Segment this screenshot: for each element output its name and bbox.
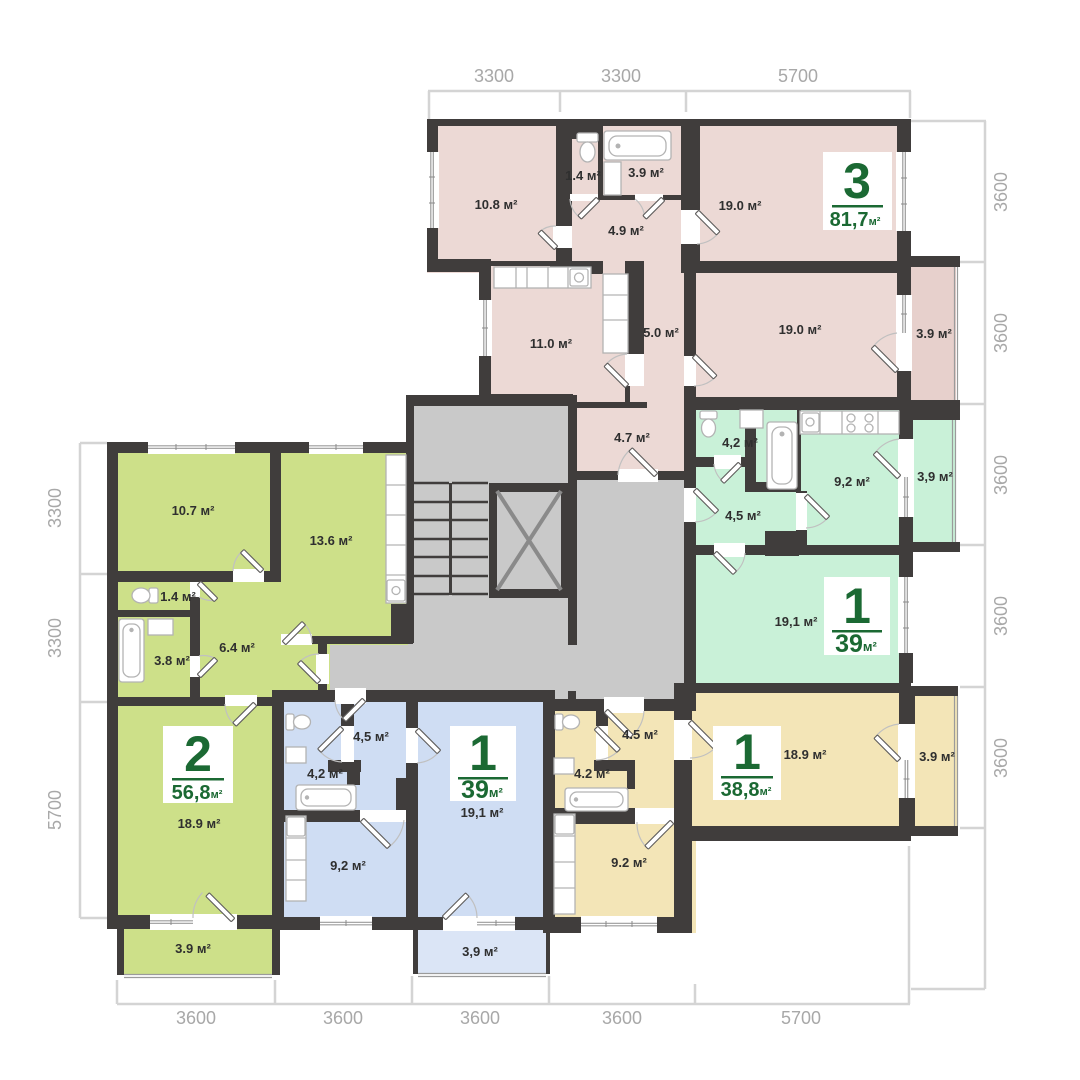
svg-text:3.9 м²: 3.9 м² [916, 326, 952, 341]
svg-text:10.7 м²: 10.7 м² [172, 503, 216, 518]
svg-text:19,1 м²: 19,1 м² [775, 614, 819, 629]
svg-text:13.6 м²: 13.6 м² [310, 533, 354, 548]
svg-text:5700: 5700 [45, 790, 65, 830]
svg-text:3300: 3300 [601, 66, 641, 86]
svg-text:3.9 м²: 3.9 м² [175, 941, 211, 956]
svg-text:19.0 м²: 19.0 м² [719, 198, 763, 213]
svg-text:1: 1 [469, 725, 497, 781]
svg-text:3.8 м²: 3.8 м² [154, 653, 190, 668]
svg-text:19.0 м²: 19.0 м² [779, 322, 823, 337]
svg-text:11.0 м²: 11.0 м² [530, 336, 573, 351]
svg-text:1: 1 [733, 724, 761, 780]
svg-text:3600: 3600 [991, 596, 1011, 636]
svg-text:5700: 5700 [778, 66, 818, 86]
svg-text:3600: 3600 [991, 738, 1011, 778]
svg-text:3,9 м²: 3,9 м² [462, 944, 498, 959]
svg-text:4,2 м²: 4,2 м² [722, 435, 758, 450]
svg-text:1: 1 [843, 578, 871, 634]
svg-text:3300: 3300 [45, 618, 65, 658]
svg-text:3600: 3600 [460, 1008, 500, 1028]
svg-text:9.2 м²: 9.2 м² [611, 855, 647, 870]
svg-text:5.0 м²: 5.0 м² [643, 325, 679, 340]
svg-text:3.9 м²: 3.9 м² [628, 165, 664, 180]
svg-text:3,9 м²: 3,9 м² [917, 469, 953, 484]
svg-text:18.9 м²: 18.9 м² [784, 747, 828, 762]
svg-text:1.4 м²: 1.4 м² [160, 589, 196, 604]
svg-text:2: 2 [184, 726, 212, 782]
svg-text:4,5 м²: 4,5 м² [353, 729, 389, 744]
svg-text:9,2 м²: 9,2 м² [834, 474, 870, 489]
svg-text:3: 3 [843, 153, 871, 209]
svg-text:3300: 3300 [45, 488, 65, 528]
svg-text:4.7 м²: 4.7 м² [614, 430, 650, 445]
svg-text:4,2 м²: 4,2 м² [307, 766, 343, 781]
svg-text:3600: 3600 [176, 1008, 216, 1028]
svg-text:3300: 3300 [474, 66, 514, 86]
svg-text:9,2 м²: 9,2 м² [330, 858, 366, 873]
svg-text:3600: 3600 [991, 172, 1011, 212]
svg-text:3600: 3600 [991, 313, 1011, 353]
svg-text:1.4 м²: 1.4 м² [565, 168, 601, 183]
svg-text:4,5 м²: 4,5 м² [725, 508, 761, 523]
svg-text:3600: 3600 [323, 1008, 363, 1028]
svg-text:18.9 м²: 18.9 м² [178, 816, 222, 831]
svg-text:19,1 м²: 19,1 м² [461, 805, 505, 820]
svg-text:6.4 м²: 6.4 м² [219, 640, 255, 655]
svg-text:3600: 3600 [602, 1008, 642, 1028]
svg-text:10.8 м²: 10.8 м² [475, 197, 519, 212]
svg-text:4.9 м²: 4.9 м² [608, 223, 644, 238]
svg-text:3600: 3600 [991, 455, 1011, 495]
svg-text:4.5 м²: 4.5 м² [622, 727, 658, 742]
svg-text:4.2 м²: 4.2 м² [574, 766, 610, 781]
svg-text:3.9 м²: 3.9 м² [919, 749, 955, 764]
svg-text:5700: 5700 [781, 1008, 821, 1028]
